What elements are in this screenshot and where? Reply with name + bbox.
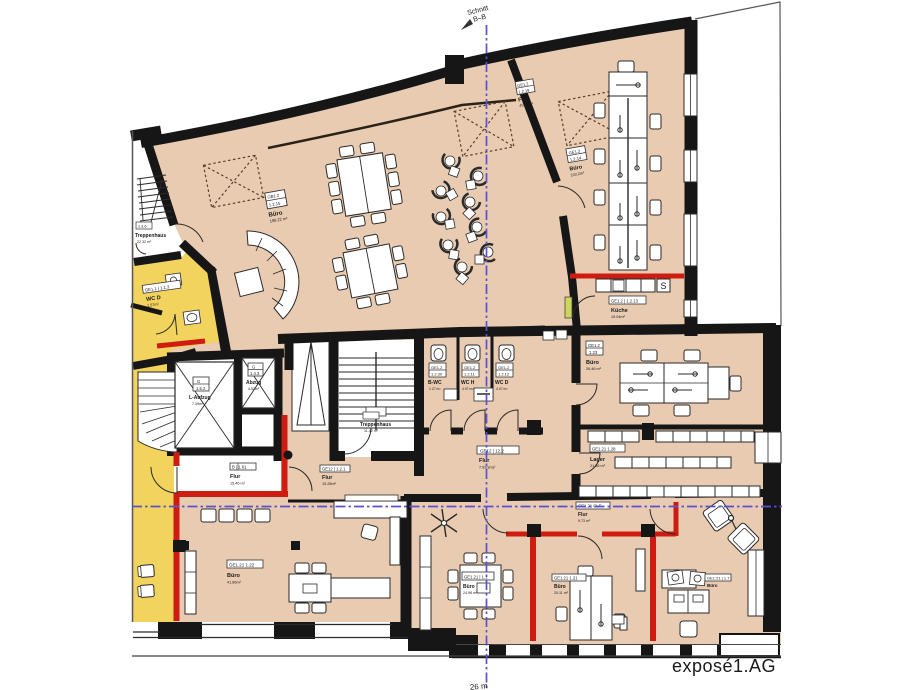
- svg-text:GE1.21 1.21: GE1.21 1.21: [554, 576, 578, 581]
- svg-text:4.97 m²: 4.97 m²: [462, 387, 474, 391]
- svg-text:GE1.2: GE1.2: [588, 343, 601, 348]
- svg-text:1.2.30: 1.2.30: [431, 372, 443, 377]
- svg-text:L-Aufzug: L-Aufzug: [189, 395, 211, 401]
- svg-text:1.2.12: 1.2.12: [498, 372, 510, 377]
- svg-text:GE1.21 1.28: GE1.21 1.28: [592, 447, 616, 452]
- svg-text:GE1.21 1.22: GE1.21 1.22: [229, 563, 255, 568]
- svg-text:11.42 m²: 11.42 m²: [364, 429, 379, 433]
- svg-text:Büro: Büro: [227, 573, 240, 579]
- svg-text:Treppenhaus: Treppenhaus: [360, 422, 391, 428]
- svg-text:Büro: Büro: [707, 583, 718, 588]
- svg-text:20.11 m²: 20.11 m²: [554, 591, 569, 595]
- svg-text:Abzug: Abzug: [246, 380, 261, 386]
- svg-text:GE12 | 1.2.1: GE12 | 1.2.1: [322, 467, 346, 472]
- svg-text:S: S: [660, 281, 666, 291]
- svg-text:4.07 m²: 4.07 m²: [496, 387, 508, 391]
- svg-text:41.86m²: 41.86m²: [227, 581, 242, 585]
- svg-text:1.3.6: 1.3.6: [138, 225, 146, 229]
- svg-text:GE1.21 | 1.7: GE1.21 | 1.7: [707, 576, 730, 581]
- svg-text:Büro: Büro: [586, 360, 599, 366]
- svg-text:Treppenhaus: Treppenhaus: [135, 233, 166, 239]
- svg-text:GE1.2: GE1.2: [431, 365, 443, 370]
- svg-text:1.5.2: 1.5.2: [196, 386, 206, 391]
- svg-text:9.73 m²: 9.73 m²: [578, 519, 591, 523]
- svg-text:Lager: Lager: [590, 457, 606, 463]
- svg-text:Flur: Flur: [230, 474, 241, 480]
- svg-text:4.52m²: 4.52m²: [248, 387, 260, 391]
- svg-text:GE1.2 | 1.2.13: GE1.2 | 1.2.13: [611, 299, 639, 304]
- svg-text:24.98 m²: 24.98 m²: [463, 591, 478, 595]
- svg-text:21.36 m²: 21.36 m²: [590, 464, 606, 468]
- svg-text:GE12 | 12.2: GE12 | 12.2: [480, 449, 504, 454]
- svg-text:Küche: Küche: [611, 308, 628, 314]
- svg-text:26 m: 26 m: [470, 681, 489, 690]
- svg-text:15.28m²: 15.28m²: [322, 482, 337, 486]
- svg-text:1.4.3: 1.4.3: [250, 371, 260, 376]
- svg-text:26.46 m²: 26.46 m²: [586, 367, 602, 371]
- svg-text:GE1.2: GE1.2: [498, 365, 510, 370]
- svg-text:Flur: Flur: [479, 458, 490, 464]
- svg-text:1.27 m²: 1.27 m²: [429, 387, 441, 391]
- svg-text:7.39m²: 7.39m²: [192, 402, 204, 406]
- svg-text:Büro: Büro: [554, 584, 566, 590]
- svg-text:7.92(sm)²: 7.92(sm)²: [479, 466, 496, 470]
- svg-text:GE1.21 | 1.1: GE1.21 | 1.1: [464, 575, 488, 580]
- svg-text:G: G: [197, 379, 200, 384]
- svg-text:1.23: 1.23: [589, 350, 598, 355]
- svg-text:Flur: Flur: [322, 475, 333, 481]
- svg-text:15.46 m²: 15.46 m²: [230, 482, 246, 486]
- svg-text:Flur: Flur: [578, 512, 587, 518]
- svg-text:G: G: [252, 365, 255, 370]
- svg-text:WC D: WC D: [495, 380, 509, 386]
- svg-text:22.32 m²: 22.32 m²: [137, 240, 152, 244]
- svg-text:B-WC: B-WC: [428, 380, 442, 386]
- svg-text:Büro: Büro: [463, 584, 475, 590]
- svg-text:GE1.2: GE1.2: [464, 365, 476, 370]
- svg-text:B | 1.61: B | 1.61: [232, 465, 247, 470]
- svg-text:19.04m²: 19.04m²: [611, 315, 626, 319]
- svg-text:WC H: WC H: [461, 380, 475, 386]
- svg-text:exposé1.AG: exposé1.AG: [672, 656, 776, 676]
- svg-text:1.2.11: 1.2.11: [464, 372, 476, 377]
